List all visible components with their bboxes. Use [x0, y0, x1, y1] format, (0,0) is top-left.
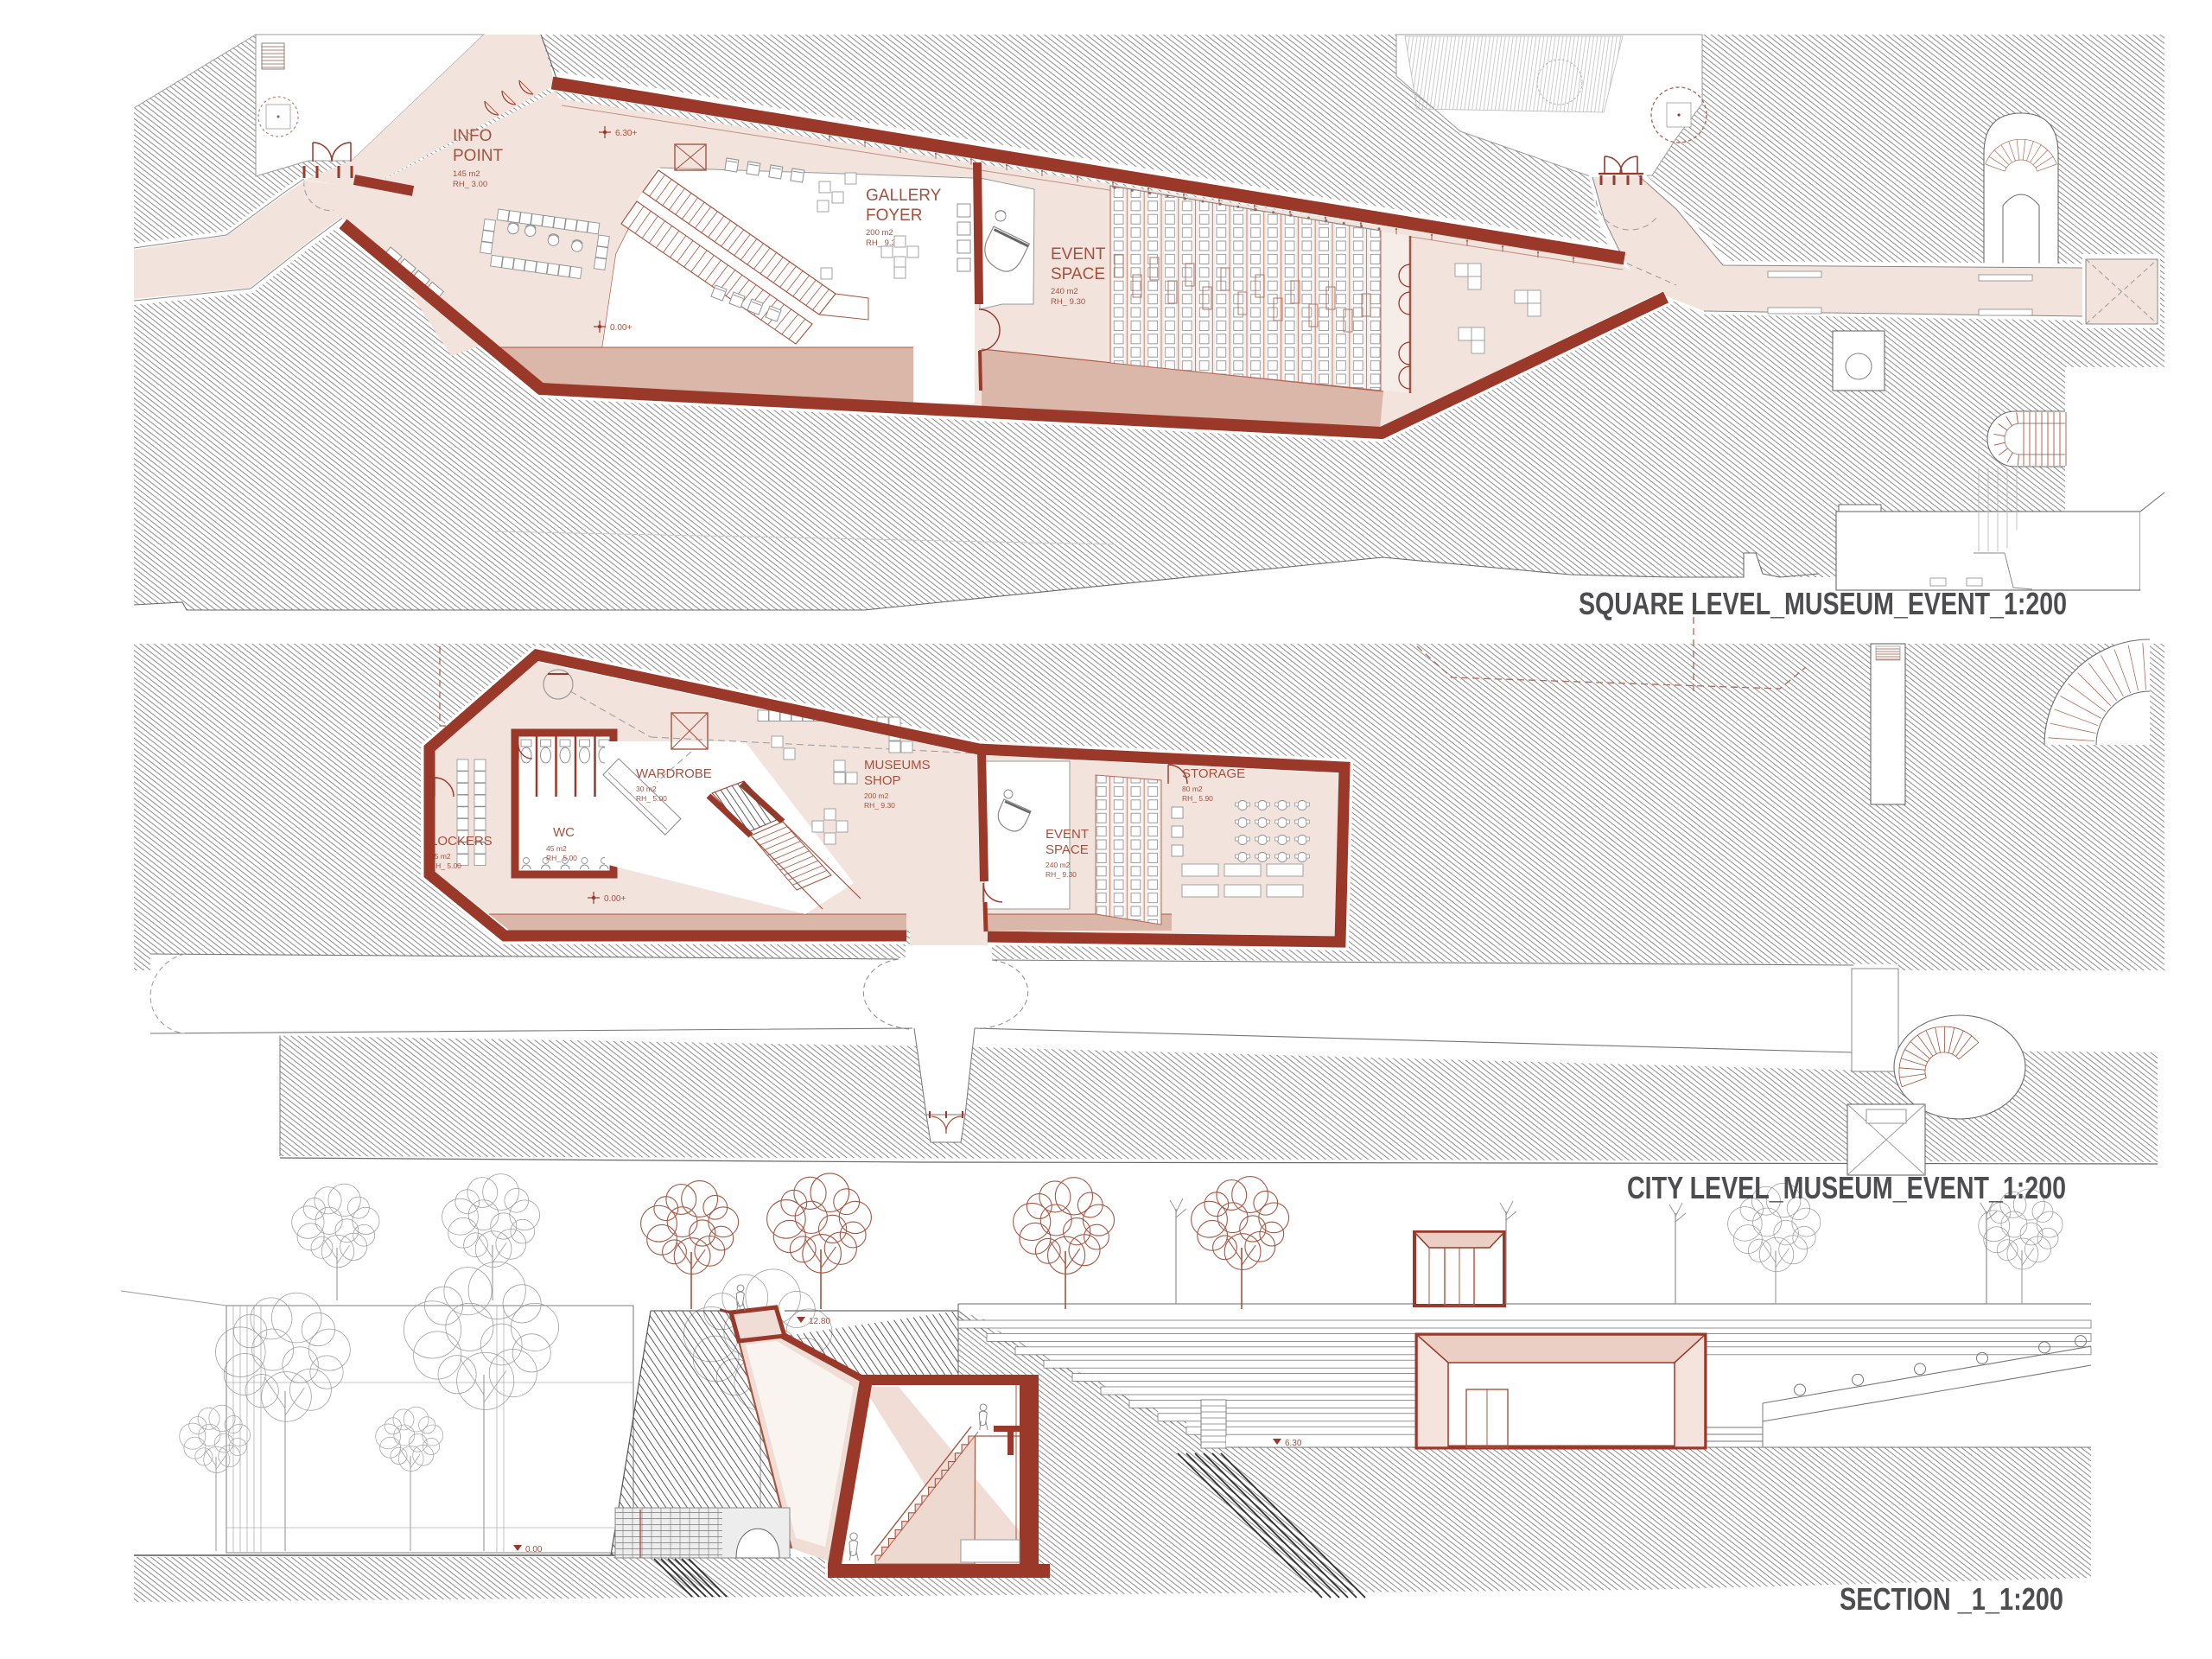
svg-text:GALLERY: GALLERY: [866, 187, 942, 205]
svg-text:WARDROBE: WARDROBE: [636, 766, 712, 781]
svg-text:0.00+: 0.00+: [604, 894, 626, 904]
svg-text:200 m2: 200 m2: [864, 791, 889, 800]
svg-text:30 m2: 30 m2: [636, 785, 657, 793]
svg-text:200 m2: 200 m2: [866, 228, 893, 238]
svg-text:EVENT: EVENT: [1046, 827, 1089, 842]
svg-text:SHOP: SHOP: [864, 773, 901, 788]
svg-text:MUSEUMS: MUSEUMS: [864, 758, 931, 772]
svg-text:145 m2: 145 m2: [453, 169, 480, 179]
svg-text:CITY LEVEL_MUSEUM_EVENT_1:200: CITY LEVEL_MUSEUM_EVENT_1:200: [1627, 1170, 2066, 1205]
svg-text:INFO: INFO: [453, 127, 492, 145]
svg-text:EVENT: EVENT: [1051, 245, 1106, 264]
svg-text:45 m2: 45 m2: [546, 844, 567, 853]
svg-text:240 m2: 240 m2: [1051, 287, 1078, 296]
svg-text:POINT: POINT: [453, 147, 503, 165]
svg-text:STORAGE: STORAGE: [1182, 766, 1245, 781]
svg-text:SQUARE LEVEL_MUSEUM_EVENT_1:20: SQUARE LEVEL_MUSEUM_EVENT_1:200: [1579, 586, 2067, 621]
svg-text:RH_ 9.30: RH_ 9.30: [864, 801, 895, 810]
svg-text:RH_ 5.00: RH_ 5.00: [636, 794, 667, 803]
svg-text:WC: WC: [553, 825, 575, 840]
svg-text:240 m2: 240 m2: [1046, 861, 1071, 869]
svg-text:0.00+: 0.00+: [610, 323, 632, 333]
svg-text:FOYER: FOYER: [866, 207, 922, 225]
svg-text:SPACE: SPACE: [1051, 265, 1105, 283]
svg-text:RH_ 5.90: RH_ 5.90: [1182, 794, 1213, 803]
svg-text:SPACE: SPACE: [1046, 842, 1089, 857]
svg-text:RH_ 9.30: RH_ 9.30: [1051, 297, 1085, 307]
svg-text:12.80: 12.80: [809, 1317, 830, 1326]
svg-text:6.30: 6.30: [1285, 1439, 1302, 1448]
svg-text:80 m2: 80 m2: [1182, 785, 1203, 793]
svg-text:0.00: 0.00: [525, 1545, 543, 1554]
svg-text:LOCKERS: LOCKERS: [430, 834, 493, 849]
svg-text:6.30+: 6.30+: [615, 129, 637, 138]
svg-text:RH_ 9.30: RH_ 9.30: [1046, 870, 1077, 879]
svg-text:RH_ 5.00: RH_ 5.00: [546, 854, 577, 862]
svg-text:SECTION _1_1:200: SECTION _1_1:200: [1840, 1581, 2063, 1617]
svg-text:RH_ 3.00: RH_ 3.00: [453, 180, 487, 189]
